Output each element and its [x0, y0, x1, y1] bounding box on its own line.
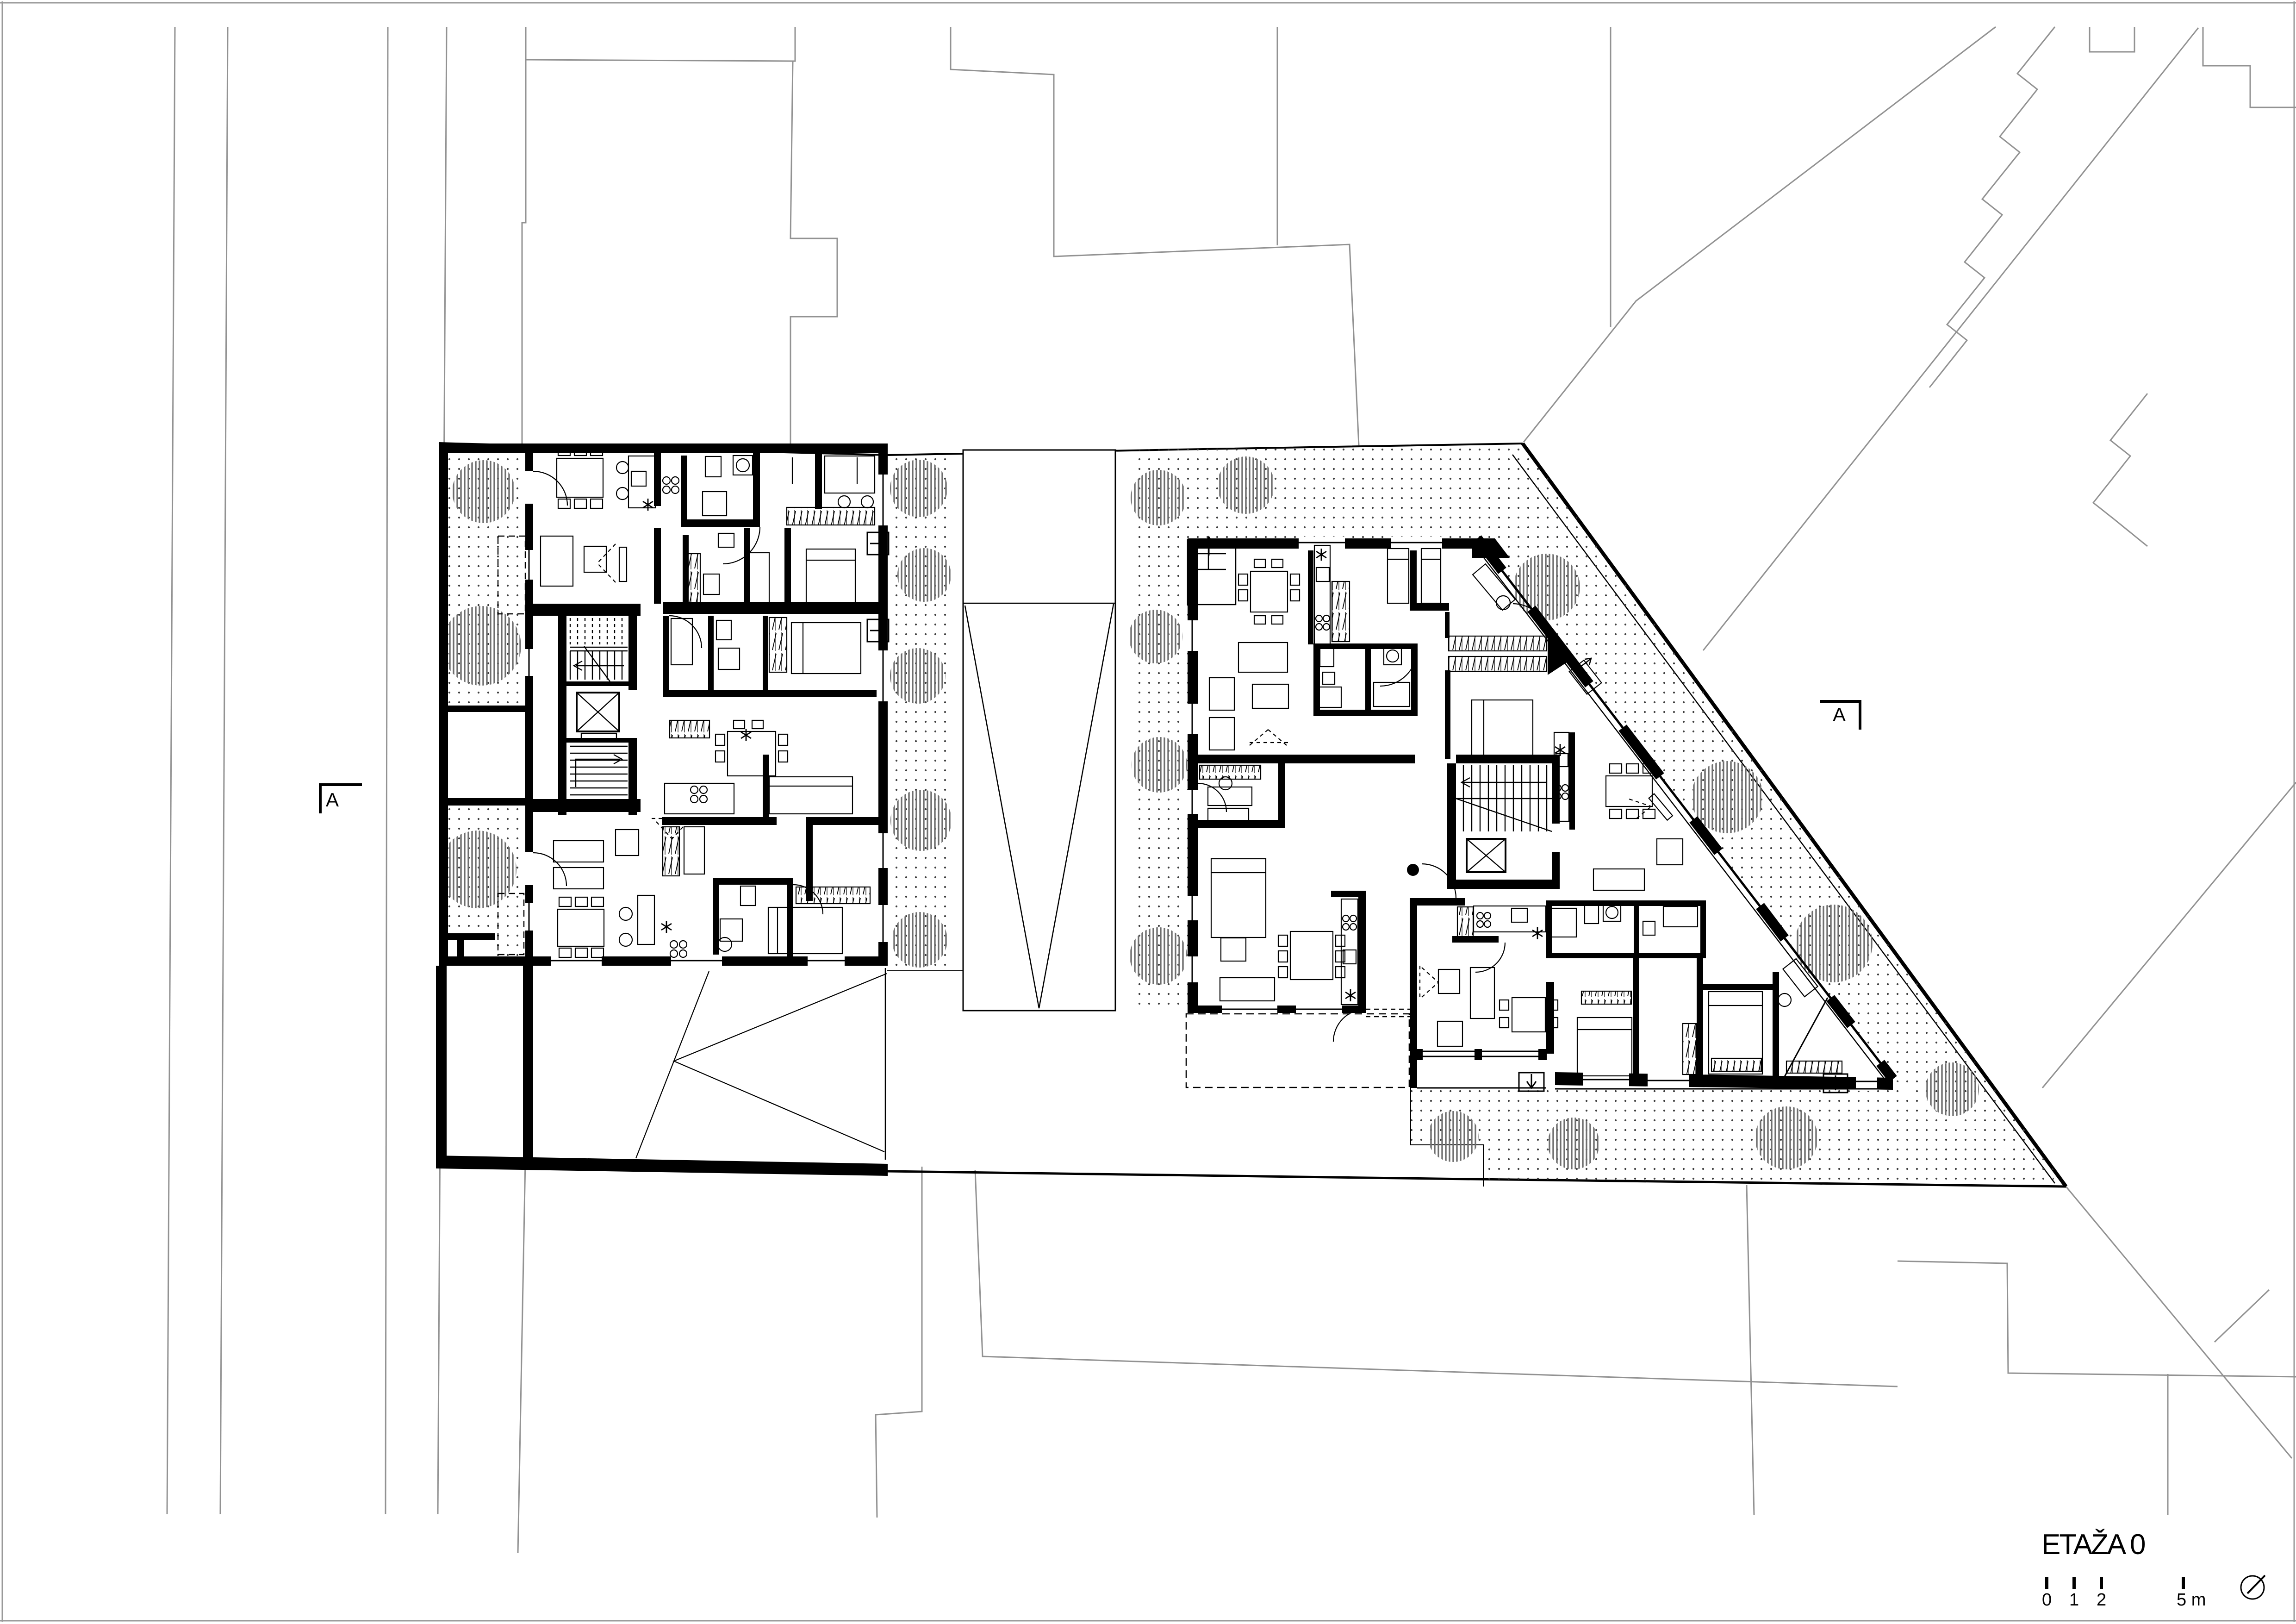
svg-text:1: 1 — [2069, 1590, 2079, 1610]
svg-text:A: A — [1833, 704, 1846, 725]
svg-text:0: 0 — [2042, 1590, 2052, 1610]
svg-text:ETAŽA 0: ETAŽA 0 — [2041, 1529, 2145, 1561]
svg-text:5 m: 5 m — [2177, 1590, 2206, 1610]
svg-text:2: 2 — [2097, 1590, 2106, 1610]
svg-text:A: A — [326, 789, 339, 811]
